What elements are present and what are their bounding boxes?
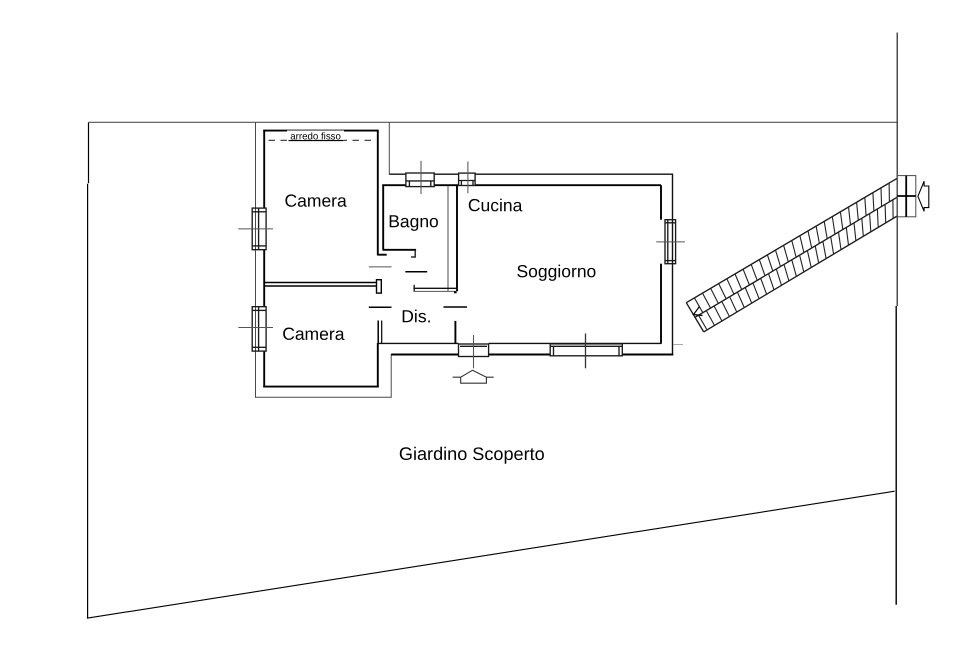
svg-text:Camera: Camera — [282, 324, 345, 344]
svg-text:arredo fisso: arredo fisso — [290, 131, 341, 142]
svg-text:Camera: Camera — [284, 191, 347, 211]
svg-text:Soggiorno: Soggiorno — [516, 261, 596, 281]
svg-text:Cucina: Cucina — [468, 195, 523, 215]
svg-text:Bagno: Bagno — [388, 211, 439, 231]
svg-text:Dis.: Dis. — [401, 306, 431, 326]
svg-text:Giardino Scoperto: Giardino Scoperto — [399, 444, 545, 464]
